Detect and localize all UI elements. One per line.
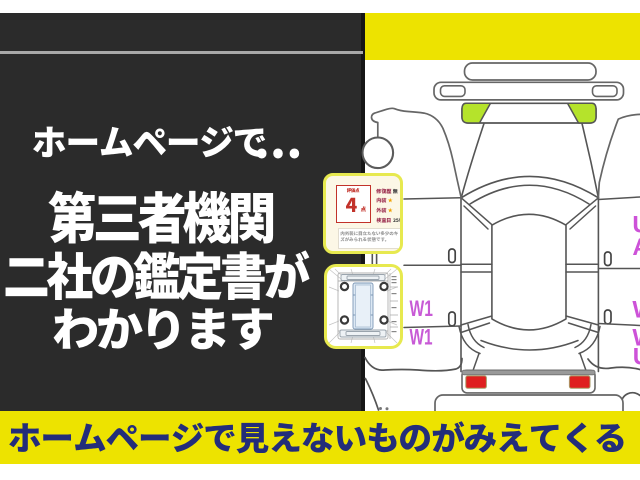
svg-text:W1: W1 bbox=[410, 324, 433, 349]
svg-text:W1: W1 bbox=[410, 296, 433, 321]
svg-text:A: A bbox=[632, 233, 640, 260]
svg-text:W: W bbox=[632, 296, 640, 323]
svg-text:U: U bbox=[633, 343, 640, 370]
